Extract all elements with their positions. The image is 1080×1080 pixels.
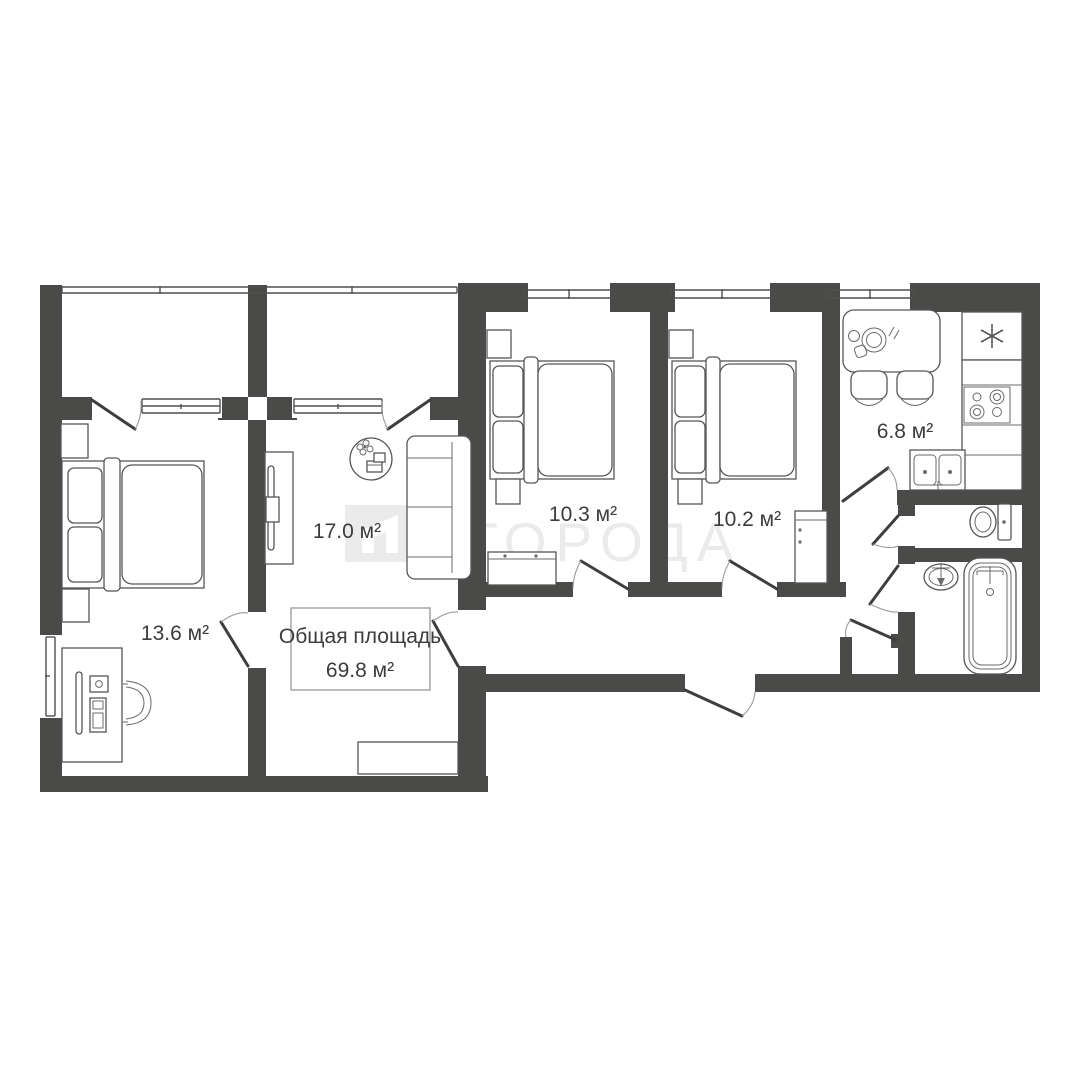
window-bedroom-right [671, 289, 774, 299]
pillow [675, 421, 705, 473]
pillow [68, 527, 102, 582]
pillow [675, 366, 705, 417]
floor-plan-image: ГОРОДА [0, 0, 1080, 1080]
balcony-window-left [140, 396, 222, 418]
bathtub-icon [964, 558, 1016, 674]
door-kitchen [843, 468, 897, 501]
chair [851, 371, 887, 406]
headboard [104, 458, 120, 591]
system-unit-icon [90, 698, 106, 732]
cabinet [358, 742, 458, 774]
door-vestibule [846, 620, 896, 640]
round-table [350, 438, 392, 480]
floor-plan: ГОРОДА [0, 0, 1080, 1080]
window-bedroom-left [40, 635, 62, 718]
pillow [493, 366, 523, 417]
furniture-living-room [265, 436, 471, 774]
door-bathroom [870, 566, 898, 612]
chair [897, 371, 933, 406]
nightstand [669, 330, 693, 358]
furniture-bedroom-left [61, 424, 204, 762]
door-wc [873, 516, 898, 548]
headboard [524, 357, 538, 483]
tv-stand [265, 452, 293, 564]
blanket [720, 364, 794, 476]
total-area-value: 69.8 м² [326, 659, 394, 682]
double-bed [490, 357, 614, 483]
furniture-bathroom [924, 558, 1016, 674]
furniture-kitchen [843, 310, 1022, 490]
door-balcony-left [92, 400, 141, 429]
nightstand [678, 479, 702, 504]
double-bed [62, 458, 204, 591]
sofa [407, 436, 471, 579]
double-bed [672, 357, 796, 483]
nightstand [496, 479, 520, 504]
washbasin-icon [924, 563, 958, 590]
nightstand [62, 589, 89, 622]
kitchen-counter [962, 360, 1022, 490]
label-bedroom-right: 10.2 м² [713, 508, 781, 531]
kitchen-sink [910, 450, 965, 490]
total-area-title: Общая площадь [279, 625, 441, 648]
pillow [493, 421, 523, 473]
monitor-icon [76, 672, 82, 734]
label-living-room: 17.0 м² [313, 520, 381, 543]
bench [488, 552, 556, 585]
headboard [706, 357, 720, 483]
label-bedroom-mid: 10.3 м² [549, 503, 617, 526]
pillow [68, 468, 102, 523]
pc-icon [90, 676, 108, 692]
door-balcony-right [382, 400, 430, 429]
blanket [538, 364, 612, 476]
balcony-window-right [292, 396, 384, 418]
door-entrance [685, 690, 755, 716]
dining-table [843, 310, 940, 372]
furniture-wc [970, 504, 1011, 540]
door-bedroom-left [221, 613, 248, 666]
label-kitchen: 6.8 м² [877, 420, 933, 443]
label-bedroom-left: 13.6 м² [141, 622, 209, 645]
fridge [962, 312, 1022, 360]
desk-chair [122, 681, 151, 725]
blanket [122, 465, 202, 584]
toilet-icon [970, 504, 1011, 540]
nightstand [487, 330, 511, 358]
window-bedroom-mid [524, 289, 614, 299]
total-area-box: Общая площадь 69.8 м² [279, 608, 441, 690]
desk [62, 648, 122, 762]
nightstand [61, 424, 88, 458]
dresser [795, 511, 827, 583]
